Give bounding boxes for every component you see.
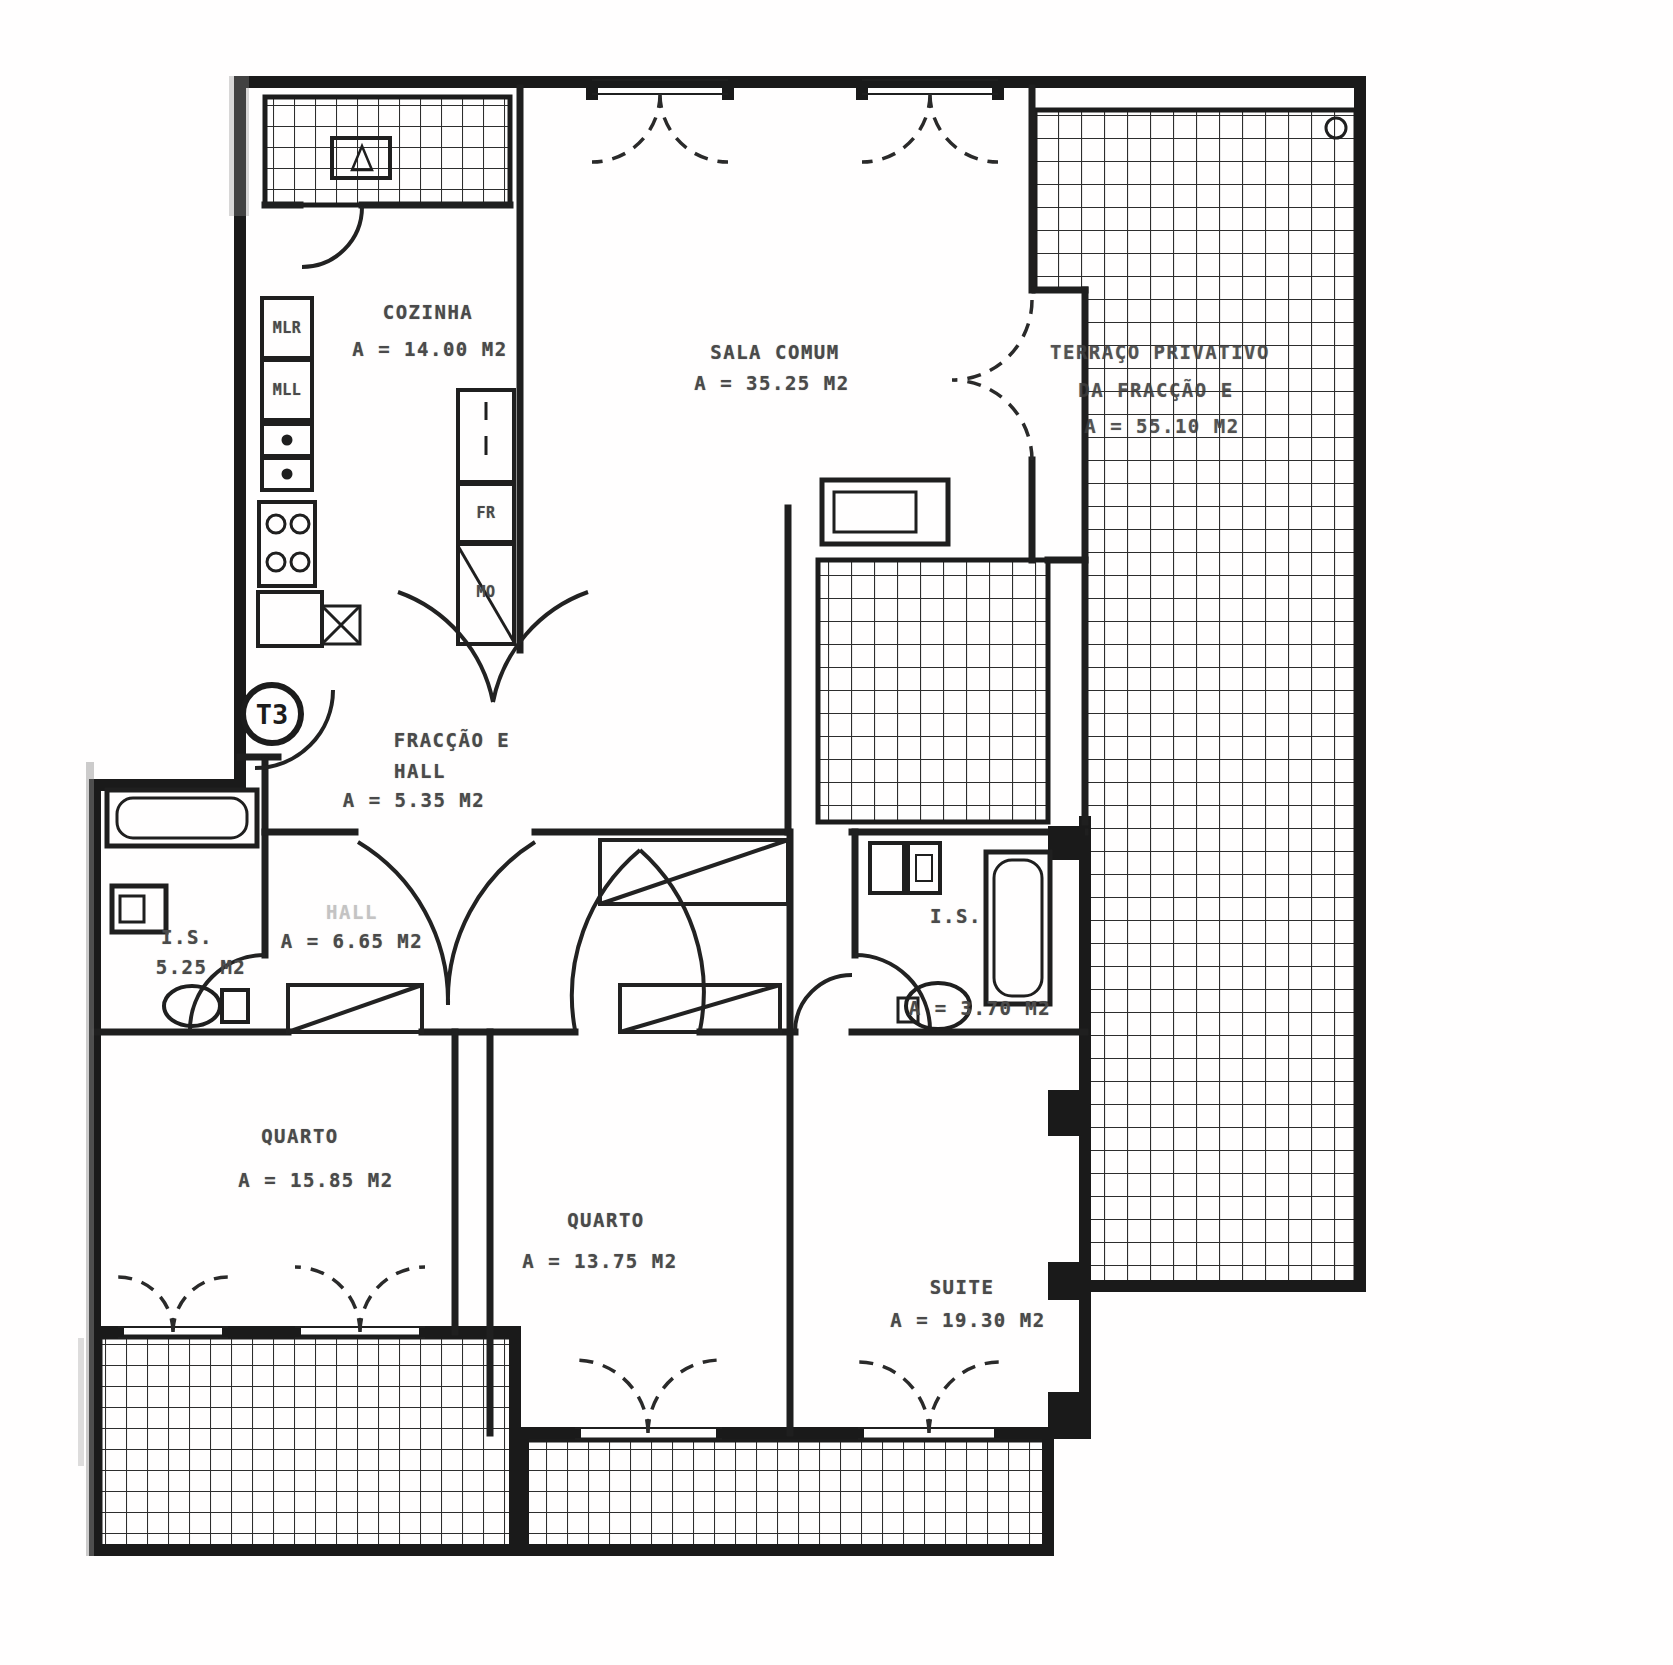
appliance-label-mo: MO	[476, 583, 495, 601]
stove	[259, 502, 315, 586]
patio-tiles	[818, 560, 1048, 822]
bathroom-fixtures	[107, 790, 1050, 1029]
appliance-label-mlr: MLR	[273, 319, 302, 337]
room-label-sala: SALA COMUM	[710, 341, 839, 363]
room-area-terraco: A = 55.10 M2	[1084, 415, 1239, 437]
room-label-fraccao-2: HALL	[394, 760, 446, 782]
balcony-top-left-tiles	[265, 97, 510, 205]
room-label-quarto1: QUARTO	[261, 1125, 339, 1147]
room-area-is-right: A = 3.70 M2	[909, 997, 1051, 1019]
room-label-suite: SUITE	[930, 1276, 995, 1298]
typology-badge: T3	[240, 682, 304, 746]
room-label-hall: HALL	[326, 901, 378, 923]
floorplan-drawing	[0, 0, 1673, 1665]
scan-smudge-left	[86, 762, 94, 1556]
room-label-is-left: I.S.	[161, 926, 213, 948]
room-label-terraco-2: DA FRACÇÃO E	[1078, 379, 1233, 401]
sink	[258, 592, 322, 646]
room-area-suite: A = 19.30 M2	[890, 1309, 1045, 1331]
balcony-bottom-left-tiles	[100, 1337, 515, 1550]
sideboard	[822, 480, 948, 544]
room-area-sala: A = 35.25 M2	[694, 372, 849, 394]
room-area-cozinha: A = 14.00 M2	[352, 338, 507, 360]
scan-smudge-left-2	[78, 1338, 84, 1466]
room-area-hall: A = 6.65 M2	[281, 930, 423, 952]
room-label-cozinha: COZINHA	[383, 301, 474, 323]
balcony-bottom-center-tiles	[523, 1440, 1048, 1550]
room-label-quarto2: QUARTO	[567, 1209, 645, 1231]
scan-smudge-kitchen-wall	[229, 76, 249, 216]
room-area-fraccao: A = 5.35 M2	[343, 789, 485, 811]
appliance-label-fr: FR	[476, 504, 495, 522]
room-area-quarto1: A = 15.85 M2	[238, 1169, 393, 1191]
room-label-fraccao: FRACÇÃO E	[394, 729, 510, 751]
room-label-terraco: TERRAÇO PRIVATIVO	[1050, 341, 1270, 363]
appliance-label-mll: MLL	[273, 381, 302, 399]
room-area-is-left: 5.25 M2	[156, 956, 247, 978]
room-label-is-right: I.S.	[930, 905, 982, 927]
washbasin-right	[870, 843, 904, 893]
room-area-quarto2: A = 13.75 M2	[522, 1250, 677, 1272]
floorplan-page: T3 COZINHA A = 14.00 M2 SALA COMUM A = 3…	[0, 0, 1673, 1665]
